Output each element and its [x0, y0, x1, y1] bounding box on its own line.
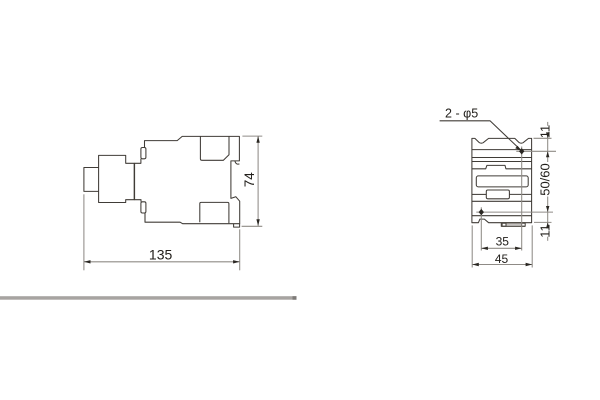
svg-text:35: 35	[496, 235, 510, 249]
svg-text:50/60: 50/60	[538, 163, 553, 196]
svg-text:11: 11	[538, 125, 553, 139]
svg-text:135: 135	[149, 246, 173, 262]
svg-text:11: 11	[538, 224, 553, 238]
svg-text:45: 45	[495, 252, 509, 266]
svg-text:2 - φ5: 2 - φ5	[445, 107, 478, 121]
svg-text:74: 74	[242, 172, 257, 188]
